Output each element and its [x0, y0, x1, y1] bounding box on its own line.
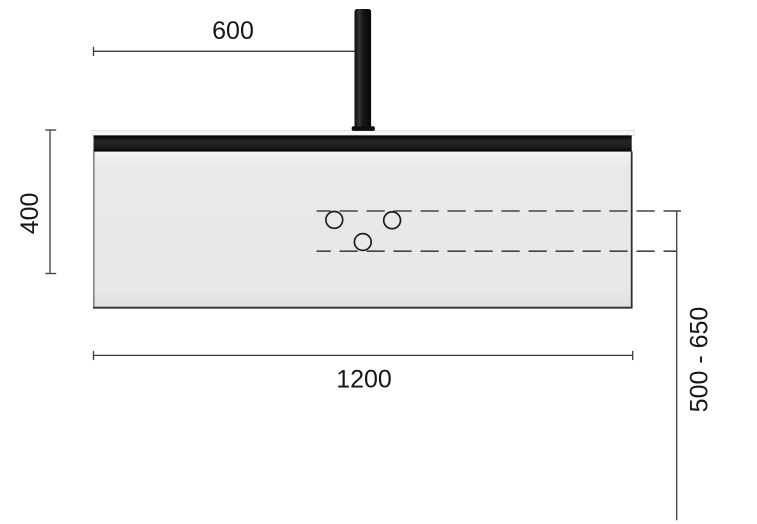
svg-text:500 - 650: 500 - 650	[686, 307, 714, 413]
svg-text:400: 400	[16, 193, 44, 235]
svg-text:1200: 1200	[336, 366, 392, 394]
svg-text:600: 600	[212, 17, 254, 45]
